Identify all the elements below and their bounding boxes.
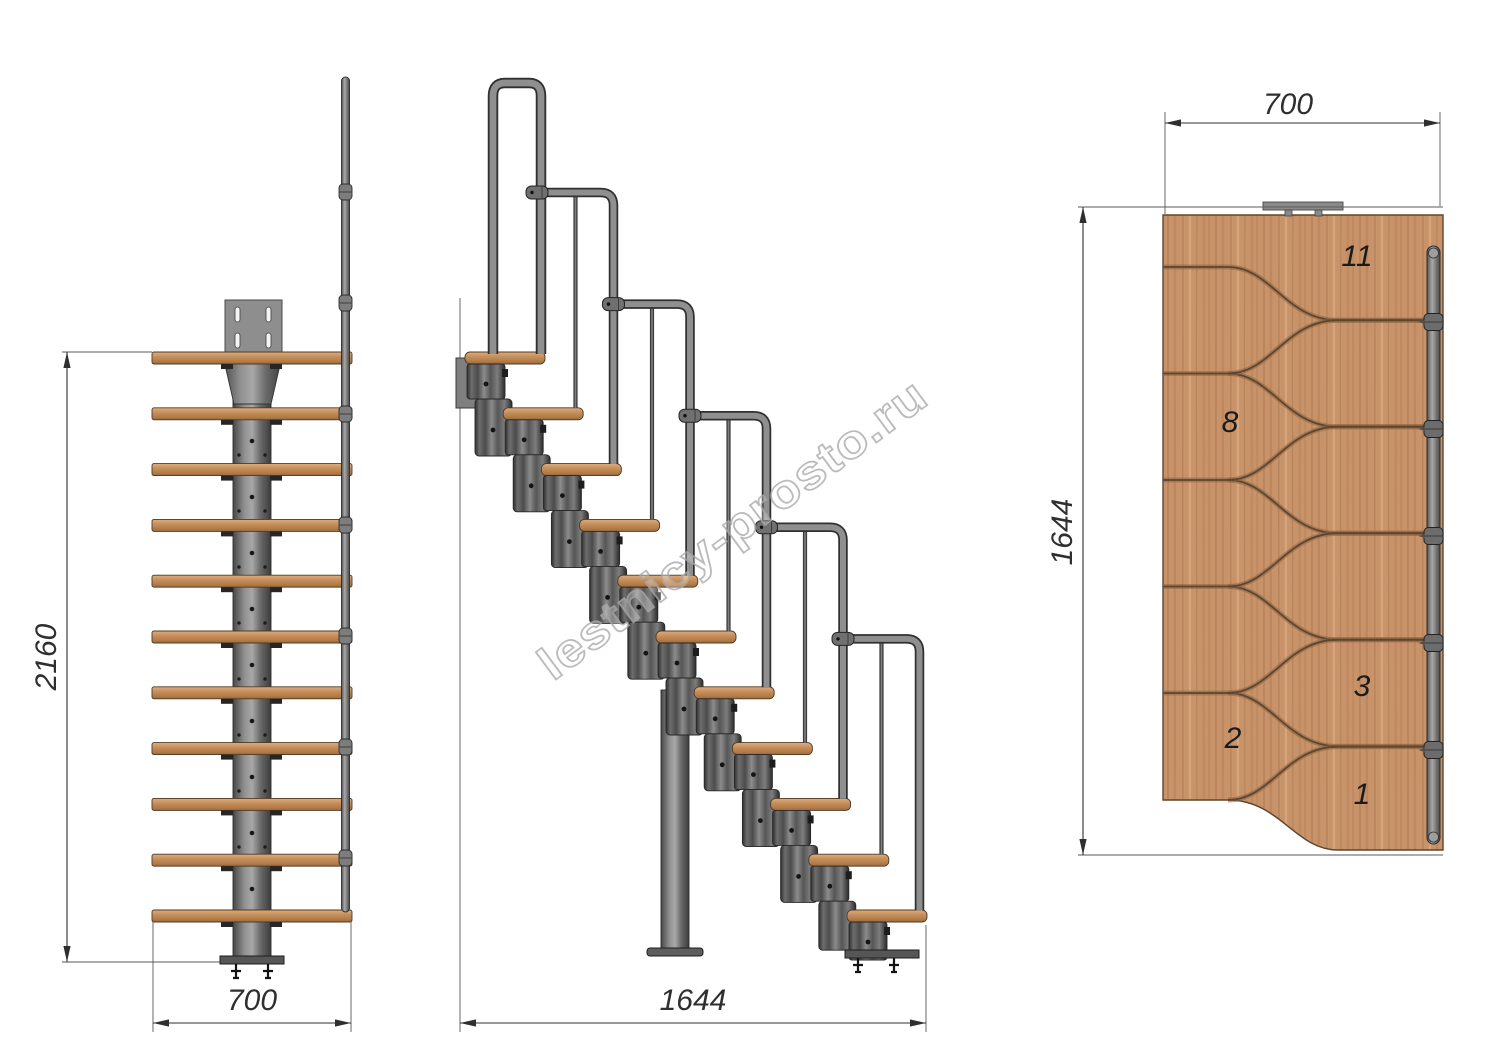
rail-connector	[339, 850, 352, 866]
rail-clamp	[603, 298, 625, 311]
plan-view: 11 8 3 2 1	[1046, 88, 1443, 855]
front-base-plate	[220, 956, 284, 978]
side-length-dimension: 1644	[460, 984, 926, 1027]
step-number-11: 11	[1341, 240, 1372, 273]
rail-clamp	[679, 409, 701, 422]
rail-clamp	[526, 186, 548, 199]
arrowhead-down	[63, 946, 70, 962]
plan-top-bracket	[1263, 202, 1343, 216]
front-width-value: 700	[227, 984, 277, 1017]
side-length-value: 1644	[660, 984, 727, 1017]
rail-connector	[339, 517, 352, 533]
front-view: 2160	[30, 77, 352, 1032]
step-number-2: 2	[1224, 722, 1242, 755]
front-height-dimension: 2160	[30, 352, 237, 962]
rail-connector	[339, 184, 352, 200]
rail-clamp	[832, 632, 854, 645]
front-handrail-post	[339, 77, 352, 912]
rail-end-cap	[1429, 832, 1439, 842]
step-number-1: 1	[1354, 778, 1371, 811]
rail-connector	[339, 295, 352, 311]
top-u-handrail	[493, 83, 541, 354]
front-height-value: 2160	[30, 623, 63, 691]
step-number-3: 3	[1354, 670, 1371, 703]
plan-length-value: 1644	[1046, 499, 1079, 566]
anchor-bolt	[263, 964, 273, 978]
rail-connector	[339, 406, 352, 422]
plan-width-dimension: 700	[1165, 88, 1440, 214]
rail-connector	[339, 628, 352, 644]
step-number-8: 8	[1222, 406, 1239, 439]
rail-connector	[339, 739, 352, 755]
front-top-mounting-plate	[225, 300, 282, 352]
anchor-bolt	[231, 964, 241, 978]
staircase-drawing-page: 2160	[0, 0, 1500, 1060]
staircase-technical-drawing: 2160	[0, 0, 1500, 1060]
anchor-bolt	[889, 958, 899, 972]
rail-end-cap	[1429, 248, 1439, 258]
plan-width-value: 700	[1263, 88, 1313, 121]
side-base-plate	[845, 950, 919, 972]
arrowhead-up	[63, 352, 70, 368]
